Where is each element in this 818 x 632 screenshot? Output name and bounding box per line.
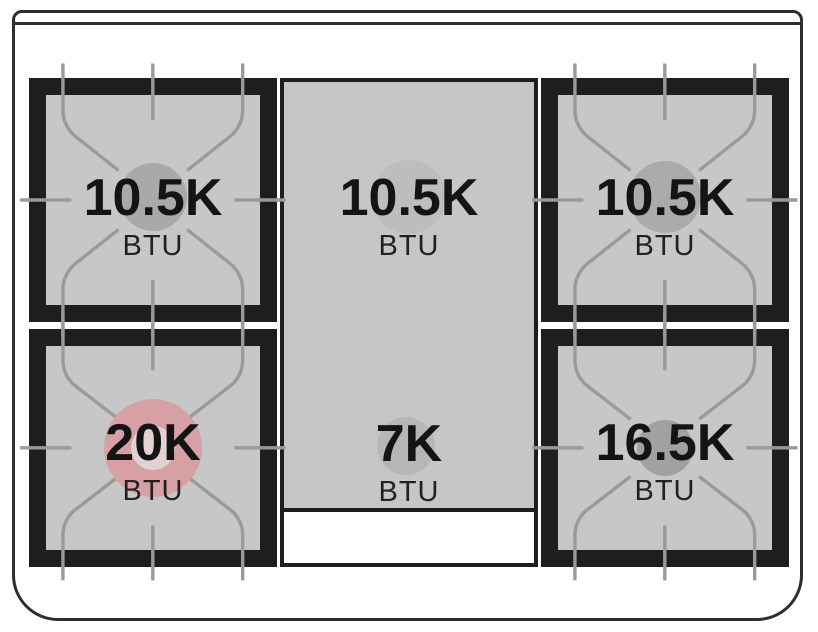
burner-btu-unit: BTU — [541, 231, 789, 261]
burner-btu-value: 16.5K — [541, 415, 789, 471]
burner-btu-unit: BTU — [29, 476, 277, 506]
burner-btu-value: 10.5K — [280, 170, 538, 226]
burner-btu-unit: BTU — [29, 231, 277, 261]
burner-bottom-left: 20K BTU — [29, 329, 277, 567]
center-griddle-module: 10.5K BTU 7K BTU — [280, 78, 538, 567]
burner-label: 10.5K BTU — [280, 170, 538, 261]
burner-btu-unit: BTU — [280, 477, 538, 507]
burner-btu-unit: BTU — [280, 231, 538, 261]
burner-top-left: 10.5K BTU — [29, 78, 277, 322]
burner-label: 10.5K BTU — [29, 170, 277, 261]
burner-btu-value: 20K — [29, 415, 277, 471]
cooktop-diagram: 10.5K BTU 20K BTU — [0, 0, 818, 632]
griddle-tray — [284, 512, 534, 563]
burner-btu-value: 7K — [280, 416, 538, 472]
burner-label: 10.5K BTU — [541, 170, 789, 261]
burner-btu-value: 10.5K — [541, 170, 789, 226]
burner-label: 7K BTU — [280, 416, 538, 507]
burner-label: 16.5K BTU — [541, 415, 789, 506]
burner-top-right: 10.5K BTU — [541, 78, 789, 322]
burner-label: 20K BTU — [29, 415, 277, 506]
cooktop-back-edge-line — [13, 22, 803, 25]
burner-btu-unit: BTU — [541, 476, 789, 506]
burner-bottom-right: 16.5K BTU — [541, 329, 789, 567]
burner-btu-value: 10.5K — [29, 170, 277, 226]
